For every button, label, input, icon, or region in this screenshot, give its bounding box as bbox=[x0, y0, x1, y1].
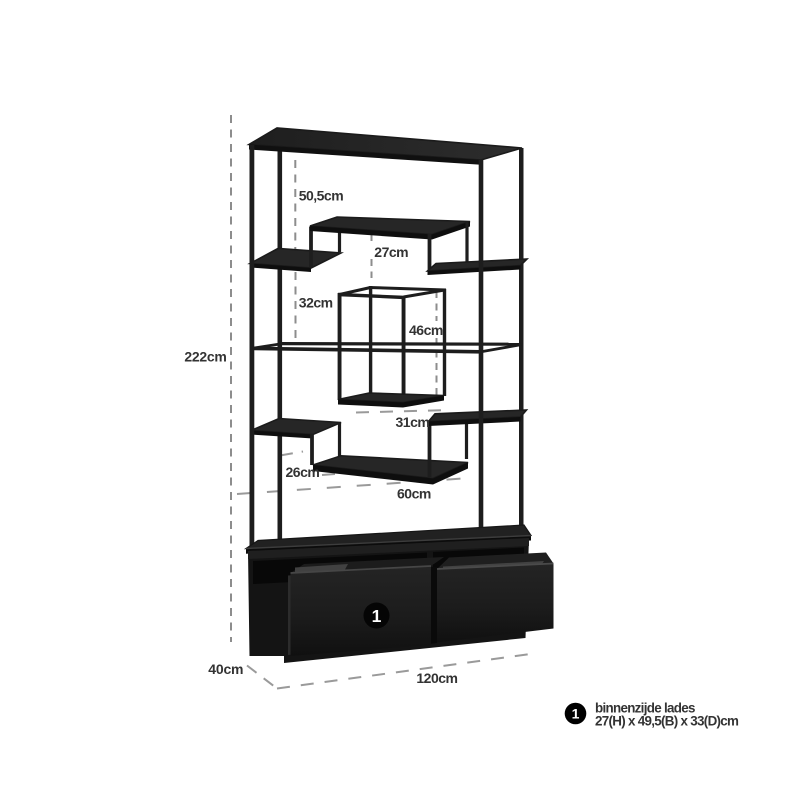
svg-text:32cm: 32cm bbox=[299, 294, 333, 310]
svg-text:50,5cm: 50,5cm bbox=[299, 188, 344, 204]
svg-text:1: 1 bbox=[572, 706, 580, 722]
svg-text:26cm: 26cm bbox=[286, 464, 320, 480]
svg-text:222cm: 222cm bbox=[184, 348, 226, 364]
svg-text:27(H) x 49,5(B) x 33(D)cm: 27(H) x 49,5(B) x 33(D)cm bbox=[595, 714, 739, 729]
svg-text:1: 1 bbox=[372, 606, 382, 626]
svg-text:40cm: 40cm bbox=[208, 661, 243, 677]
svg-text:46cm: 46cm bbox=[409, 322, 443, 338]
svg-text:31cm: 31cm bbox=[396, 414, 430, 430]
svg-text:60cm: 60cm bbox=[397, 486, 431, 502]
svg-text:27cm: 27cm bbox=[374, 244, 408, 260]
svg-text:120cm: 120cm bbox=[416, 670, 457, 686]
